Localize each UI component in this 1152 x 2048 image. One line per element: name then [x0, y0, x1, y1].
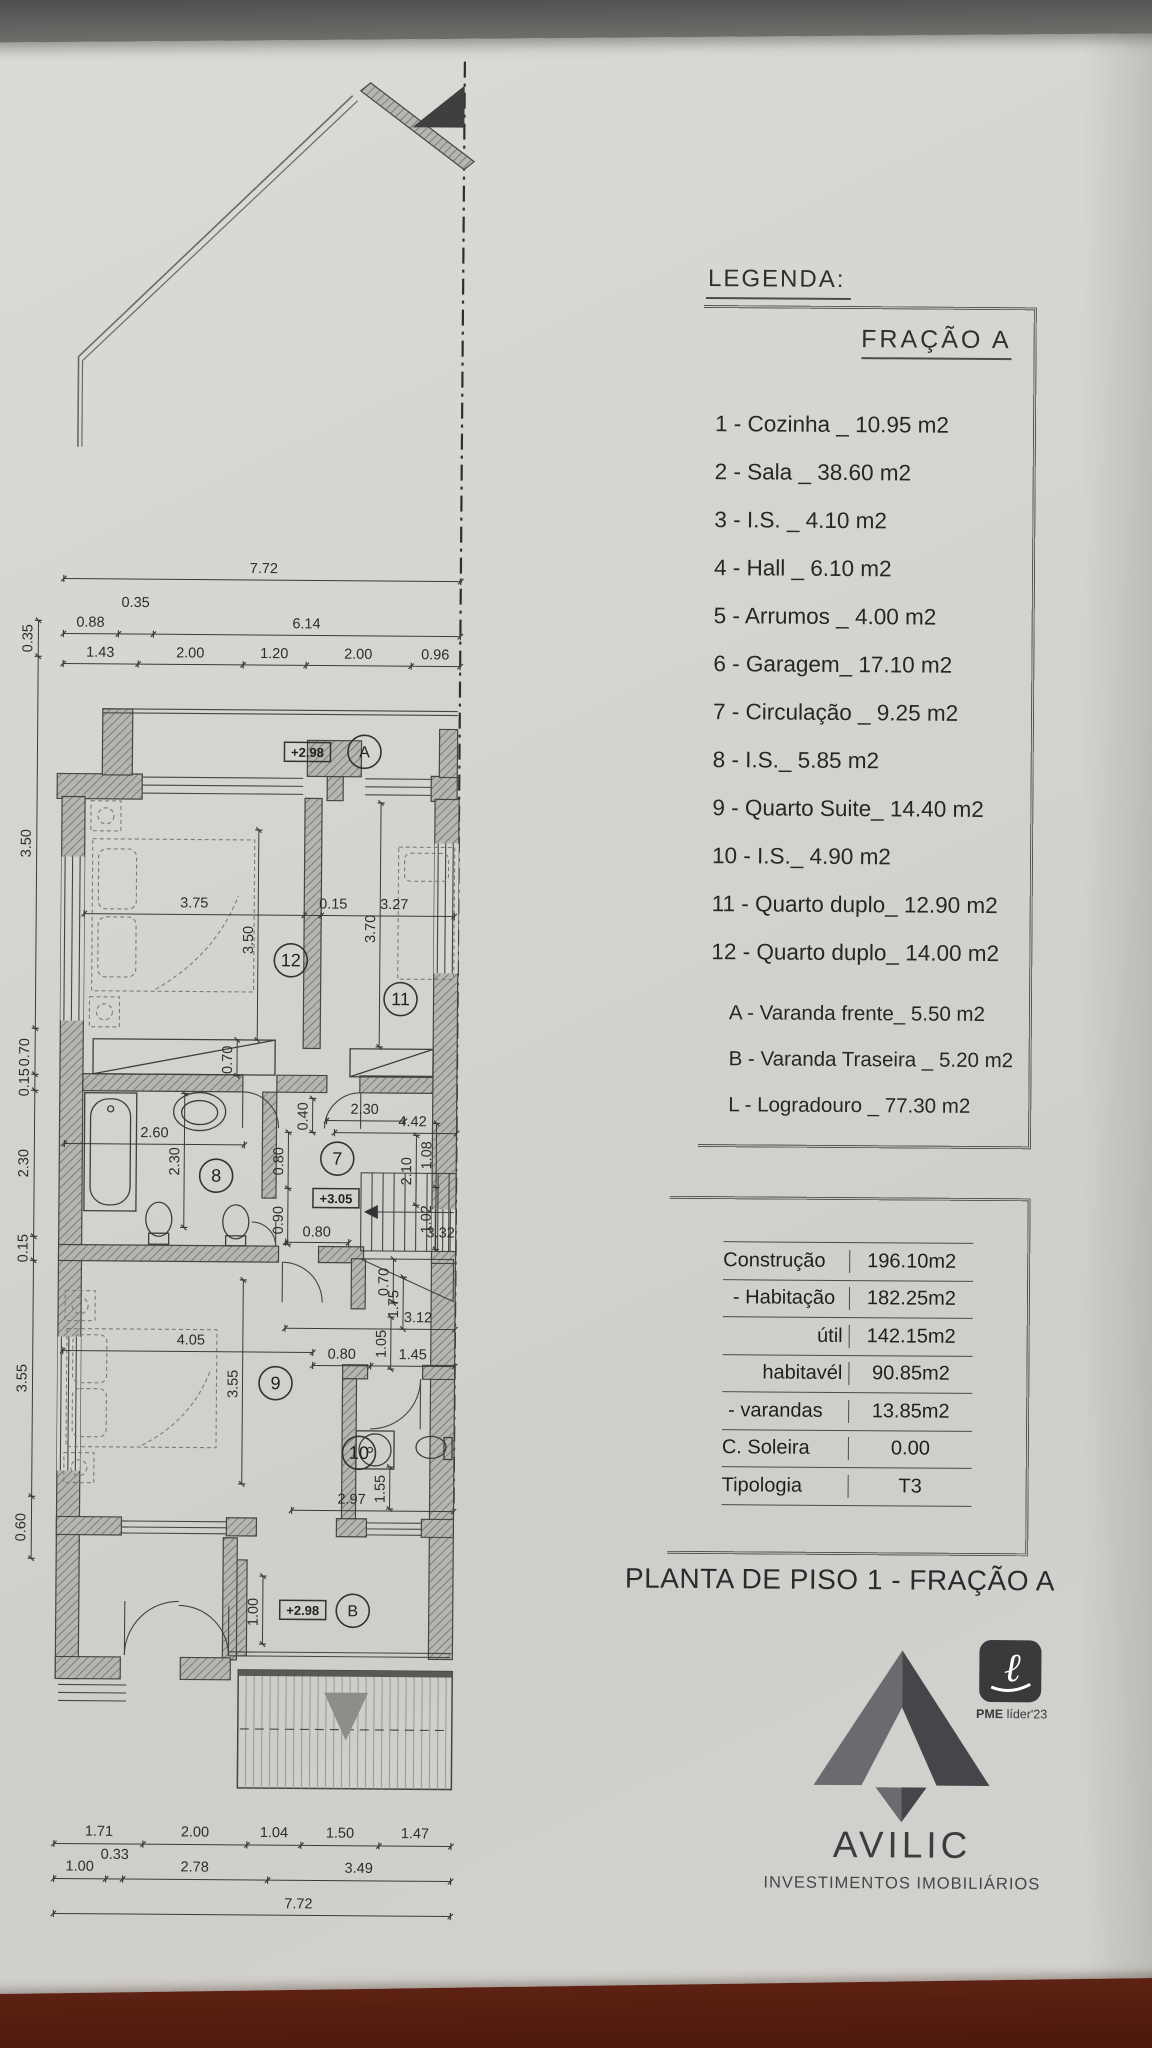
dimension-label: 0.33 — [101, 1847, 129, 1863]
paper-shadow — [1082, 0, 1152, 2048]
brand-name: AVILIC — [752, 1823, 1052, 1867]
dimension-label: 0.70 — [220, 1046, 236, 1074]
dimension-line — [327, 1121, 405, 1122]
dimension-label: 2.30 — [16, 1149, 32, 1177]
legend-title: LEGENDA: — [706, 265, 852, 300]
areas-table-box: Construção 196.10m2 - Habitação 182.25m2… — [667, 1196, 1030, 1557]
plot-boundary — [78, 81, 475, 450]
dimension-label: 1.04 — [260, 1825, 288, 1841]
dimension-label: 6.14 — [292, 616, 320, 632]
dimension-label: 1.08 — [419, 1141, 435, 1169]
legend-item: 6 - Garagem_ 17.10 m2 — [713, 640, 1001, 690]
legend-items: 1 - Cozinha _ 10.95 m2 2 - Sala _ 38.60 … — [711, 400, 1003, 978]
legend-item: 8 - I.S._ 5.85 m2 — [713, 736, 1001, 786]
balcony-letter: B — [347, 1603, 358, 1620]
dimension-label: 0.96 — [421, 647, 449, 663]
pergola — [237, 1670, 452, 1790]
dimension-line — [64, 578, 461, 581]
legend-annex-item: B - Varanda Traseira _ 5.20 m2 — [728, 1036, 1013, 1084]
dimension-label: 1.00 — [66, 1859, 94, 1875]
dimension-line — [257, 830, 259, 1040]
legend-item: 3 - I.S. _ 4.10 m2 — [714, 496, 1002, 546]
legend-item: 12 - Quarto duplo_ 14.00 m2 — [711, 928, 999, 978]
dimension-line — [288, 1132, 289, 1244]
dimension-label: 3.70 — [363, 915, 379, 943]
table-row: útil 142.15m2 — [723, 1317, 973, 1356]
dimension-line — [242, 1280, 244, 1484]
dimension-line — [64, 1144, 244, 1145]
dimension-label: 1.47 — [401, 1826, 429, 1842]
exterior-steps — [58, 1684, 126, 1701]
legend-item: 7 - Circulação _ 9.25 m2 — [713, 688, 1001, 738]
floorplan-photo: 7.720.880.356.141.432.001.202.000.963.75… — [0, 0, 1152, 2048]
company-logo: ℓ PME líder'23 AVILIC INVESTIMENTOS IMOB… — [546, 1642, 1048, 1945]
dimension-label: 1.02 — [419, 1205, 435, 1233]
dimension-label: 3.55 — [14, 1364, 30, 1392]
dimension-line — [63, 663, 460, 666]
legend-item: 9 - Quarto Suite_ 14.40 m2 — [712, 784, 1000, 834]
table-row: C. Soleira 0.00 — [722, 1430, 972, 1469]
pme-lider-badge-icon: ℓ — [978, 1639, 1042, 1703]
dimension-label: 4.05 — [177, 1332, 205, 1348]
legend-item: 10 - I.S._ 4.90 m2 — [712, 832, 1000, 882]
dimension-line — [53, 1913, 450, 1916]
dimension-label: 3.27 — [380, 897, 408, 913]
dimension-label: 2.30 — [350, 1102, 378, 1118]
legend-item: 4 - Hall _ 6.10 m2 — [714, 544, 1002, 594]
dimension-line — [379, 803, 381, 1047]
dimension-label: 3.55 — [225, 1370, 241, 1398]
dimension-label: 7.72 — [284, 1896, 312, 1912]
dimension-label: 2.30 — [167, 1147, 183, 1175]
dimension-label: 1.20 — [260, 646, 288, 662]
legend-item: 2 - Sala _ 38.60 m2 — [715, 448, 1003, 498]
legend-column: LEGENDA: FRAÇÃO A 1 - Cozinha _ 10.95 m2… — [546, 0, 1060, 2048]
legend-item: 1 - Cozinha _ 10.95 m2 — [715, 400, 1003, 450]
dimension-label: 1.05 — [374, 1330, 390, 1358]
pme-lider-label: PME líder'23 — [976, 1707, 1066, 1722]
dimension-label: 0.40 — [296, 1102, 312, 1130]
dimension-line — [285, 1328, 455, 1329]
page-title: PLANTA DE PISO 1 - FRAÇÃO A — [625, 1562, 1025, 1597]
dimension-label: 0.90 — [271, 1206, 287, 1234]
dimension-line — [63, 633, 460, 636]
dimension-label: 2.60 — [140, 1125, 168, 1141]
wardrobes — [93, 1039, 433, 1078]
balcony-letter: A — [359, 744, 370, 761]
dimension-label: 0.80 — [303, 1224, 331, 1240]
dimension-label: 0.35 — [20, 624, 36, 652]
dimension-label: 2.97 — [337, 1492, 365, 1508]
dimension-label: 1.45 — [399, 1347, 427, 1363]
dimension-label: 0.88 — [76, 615, 104, 631]
legend-item: 5 - Arrumos _ 4.00 m2 — [714, 592, 1002, 642]
dimension-label: 1.50 — [326, 1826, 354, 1842]
dimension-label: 3.49 — [345, 1861, 373, 1877]
dimension-label: 0.35 — [121, 595, 149, 611]
dimension-label: 0.15 — [319, 896, 347, 912]
legend-annex-items: A - Varanda frente_ 5.50 m2 B - Varanda … — [728, 990, 1013, 1130]
avilic-triangle-icon — [813, 1648, 1004, 1833]
dimension-line — [54, 1878, 451, 1881]
svg-text:ℓ: ℓ — [1004, 1645, 1021, 1691]
dimension-line — [63, 1350, 313, 1352]
fraction-box: FRAÇÃO A 1 - Cozinha _ 10.95 m2 2 - Sala… — [698, 305, 1037, 1149]
table-row: - Habitação 182.25m2 — [723, 1280, 973, 1319]
dimension-line — [184, 1093, 185, 1227]
table-row: Construção 196.10m2 — [723, 1241, 973, 1281]
dimension-label: 1.43 — [86, 645, 114, 661]
legend-annex-item: A - Varanda frente_ 5.50 m2 — [729, 990, 1014, 1038]
dimension-label: 3.75 — [180, 895, 208, 911]
table-row: habitavél 90.85m2 — [722, 1355, 972, 1394]
room-number: 8 — [211, 1166, 221, 1186]
dimension-label: 0.60 — [13, 1513, 29, 1541]
fraction-title: FRAÇÃO A — [861, 325, 1012, 360]
gate-leaf — [412, 85, 464, 127]
dimension-label: 2.00 — [181, 1824, 209, 1840]
dimension-label: 3.50 — [19, 829, 35, 857]
entrance-arrow — [324, 1693, 368, 1741]
floor-plan-drawing: 7.720.880.356.141.432.001.202.000.963.75… — [0, 38, 513, 1992]
room-number: 9 — [270, 1373, 280, 1393]
dimension-label: 2.00 — [344, 647, 372, 663]
room-number: 11 — [391, 989, 410, 1009]
dimension-label: 0.15 — [15, 1234, 31, 1262]
level-marker: +2.98 — [291, 745, 324, 760]
level-marker: +3.05 — [319, 1191, 352, 1206]
dimension-label: 2.10 — [399, 1157, 415, 1185]
table-row: Tipologia T3 — [721, 1467, 971, 1506]
dimension-label: 4.42 — [398, 1114, 426, 1130]
dimension-label: 2.00 — [176, 645, 204, 661]
brand-subtitle: INVESTIMENTOS IMOBILIÁRIOS — [737, 1873, 1067, 1894]
dimension-label: 0.80 — [328, 1347, 356, 1363]
dimension-label: 1.55 — [373, 1475, 389, 1503]
dimension-label: 1.00 — [246, 1598, 262, 1626]
areas-table: Construção 196.10m2 - Habitação 182.25m2… — [721, 1241, 973, 1506]
dimension-label: 1.75 — [386, 1290, 402, 1318]
dimension-label: 1.71 — [85, 1824, 113, 1840]
room-number: 7 — [332, 1149, 342, 1169]
dimension-label: 0.70 — [17, 1038, 33, 1066]
room-number: 10 — [349, 1443, 369, 1463]
dimension-label: 3.50 — [241, 926, 257, 954]
dimension-label: 0.80 — [271, 1147, 287, 1175]
dimension-label: 3.12 — [404, 1310, 432, 1326]
dimension-label: 7.72 — [250, 561, 278, 577]
level-marker: +2.98 — [286, 1603, 319, 1618]
legend-annex-item: L - Logradouro _ 77.30 m2 — [728, 1082, 1013, 1130]
dimension-line — [416, 1135, 417, 1205]
table-row: - varandas 13.85m2 — [722, 1392, 972, 1431]
dimension-line — [262, 1576, 263, 1644]
legend-item: 11 - Quarto duplo_ 12.90 m2 — [712, 880, 1000, 930]
dimension-label: 2.78 — [181, 1859, 209, 1875]
room-number: 12 — [281, 950, 301, 970]
dimension-label: 0.15 — [17, 1068, 33, 1096]
